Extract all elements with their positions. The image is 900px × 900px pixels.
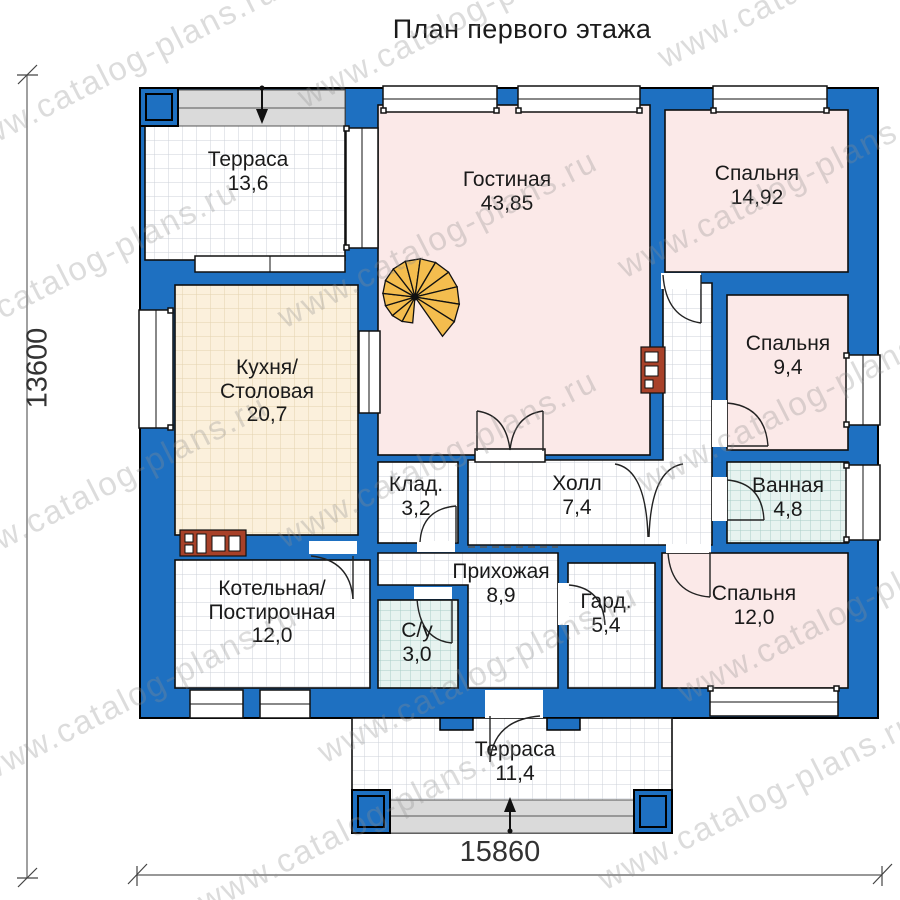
room-name: Терраса <box>460 738 570 762</box>
kitchen-pass-window <box>359 331 380 413</box>
room-name: Гард. <box>566 590 646 614</box>
room-label-terrace-top: Терраса13,6 <box>193 148 303 195</box>
room-name: Спальня <box>702 162 812 186</box>
room-area: 11,4 <box>460 762 570 786</box>
room-name: Котельная/Постирочная <box>197 577 347 624</box>
dimension-width: 15860 <box>460 836 541 869</box>
room-label-entrance-hall: Прихожая8,9 <box>441 560 561 607</box>
window <box>139 308 173 430</box>
window <box>516 86 642 113</box>
room-area: 4,8 <box>738 498 838 522</box>
room-name: Кухня/Столовая <box>215 356 319 403</box>
window <box>844 463 880 542</box>
room-label-bedroom-2: Спальня9,4 <box>733 332 843 379</box>
window <box>381 86 499 113</box>
room-name: Терраса <box>193 148 303 172</box>
room-label-bedroom-3: Спальня12,0 <box>699 582 809 629</box>
room-label-bedroom-1: Спальня14,92 <box>702 162 812 209</box>
room-label-bathroom: Ванная4,8 <box>738 474 838 521</box>
room-area: 8,9 <box>441 584 561 608</box>
window <box>260 690 310 718</box>
room-name: Прихожая <box>441 560 561 584</box>
room-area: 12,0 <box>699 606 809 630</box>
room-area: 9,4 <box>733 356 843 380</box>
room-area: 3,0 <box>387 643 447 667</box>
floor-plan-drawing <box>0 0 900 900</box>
room-name: Спальня <box>699 582 809 606</box>
window <box>708 686 839 716</box>
room-area: 5,4 <box>566 614 646 638</box>
room-name: Спальня <box>733 332 843 356</box>
room-name: С/у <box>387 619 447 643</box>
room-area: 43,85 <box>442 192 572 216</box>
dimension-height: 13600 <box>22 328 55 409</box>
floor-plan-page: План первого этажа <box>0 0 900 900</box>
vent-shaft-icon <box>641 347 665 393</box>
room-label-wc: С/у3,0 <box>387 619 447 666</box>
room-area: 7,4 <box>532 496 622 520</box>
room-name: Ванная <box>738 474 838 498</box>
room-label-boiler-laundry: Котельная/Постирочная12,0 <box>197 577 347 648</box>
room-area: 12,0 <box>197 624 347 648</box>
room-area: 14,92 <box>702 186 812 210</box>
stove-icon <box>180 530 246 556</box>
window <box>190 690 243 718</box>
room-name: Холл <box>532 472 622 496</box>
window <box>711 86 829 113</box>
room-area: 3,2 <box>376 497 456 521</box>
room-label-terrace-bottom: Терраса11,4 <box>460 738 570 785</box>
room-name: Гостиная <box>442 168 572 192</box>
room-label-pantry: Клад.3,2 <box>376 473 456 520</box>
window <box>195 256 345 272</box>
room-area: 20,7 <box>215 403 319 427</box>
window <box>344 126 378 250</box>
room-area: 13,6 <box>193 172 303 196</box>
room-label-kitchen-dining: Кухня/Столовая20,7 <box>215 356 319 427</box>
room-label-hall: Холл7,4 <box>532 472 622 519</box>
window <box>844 353 880 427</box>
room-name: Клад. <box>376 473 456 497</box>
room-label-living-room: Гостиная43,85 <box>442 168 572 215</box>
room-label-wardrobe: Гард.5,4 <box>566 590 646 637</box>
